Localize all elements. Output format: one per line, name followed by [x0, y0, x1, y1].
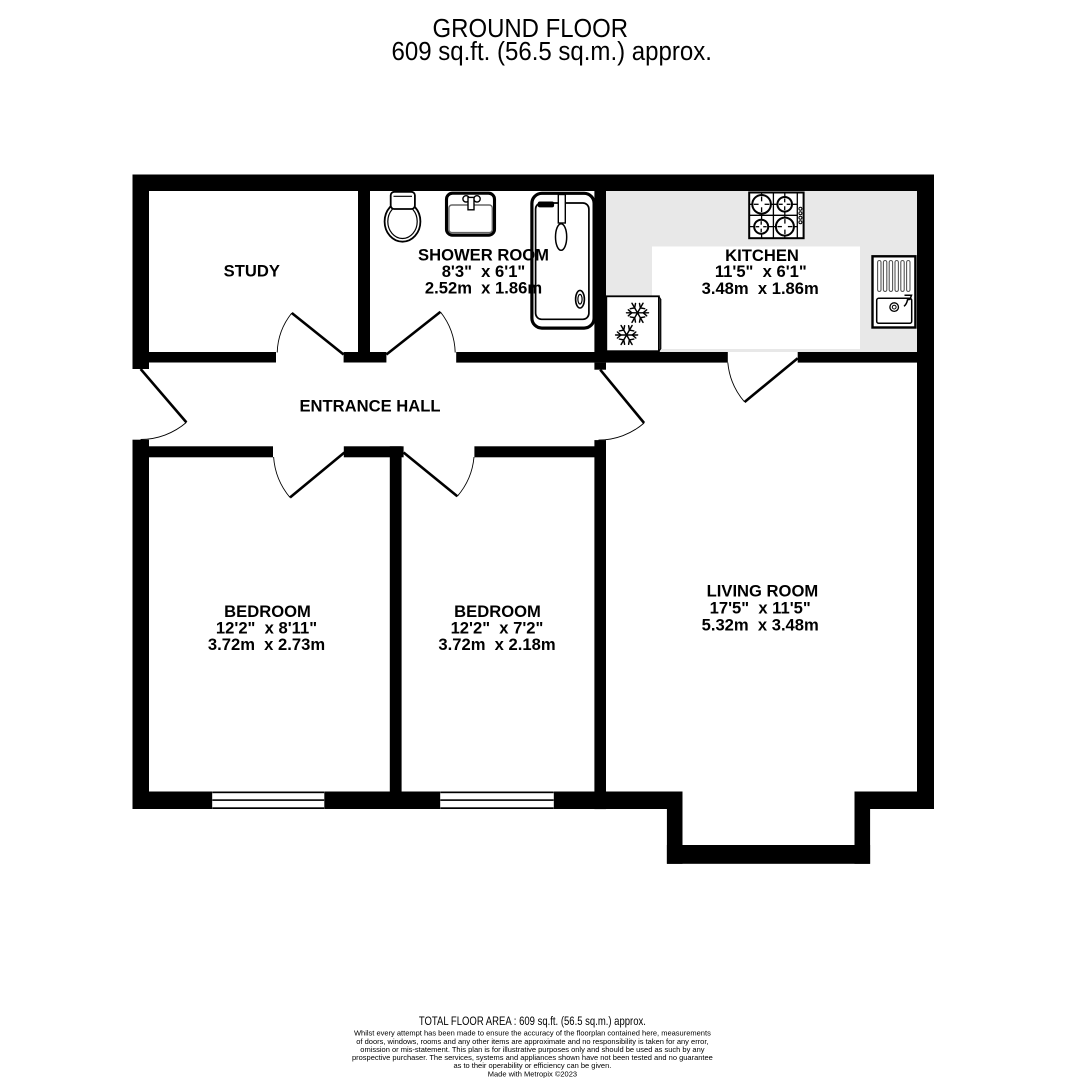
svg-text:3.72m x 2.18m: 3.72m x 2.18m	[438, 635, 555, 654]
svg-text:2.52m x 1.86m: 2.52m x 1.86m	[425, 279, 542, 298]
svg-text:ENTRANCE HALL: ENTRANCE HALL	[299, 396, 440, 415]
svg-text:5.32m x 3.48m: 5.32m x 3.48m	[702, 615, 819, 634]
svg-text:LIVING ROOM: LIVING ROOM	[707, 581, 819, 600]
svg-text:3.72m x 2.73m: 3.72m x 2.73m	[208, 635, 325, 654]
svg-text:STUDY: STUDY	[224, 262, 280, 281]
svg-text:3.48m x 1.86m: 3.48m x 1.86m	[702, 279, 819, 298]
svg-text:609 sq.ft. (56.5 sq.m.) approx: 609 sq.ft. (56.5 sq.m.) approx.	[392, 36, 712, 66]
svg-text:Made with Metropix ©2023: Made with Metropix ©2023	[488, 1069, 577, 1078]
svg-text:TOTAL FLOOR AREA : 609 sq.ft.: TOTAL FLOOR AREA : 609 sq.ft. (56.5 sq.m…	[419, 1014, 646, 1028]
